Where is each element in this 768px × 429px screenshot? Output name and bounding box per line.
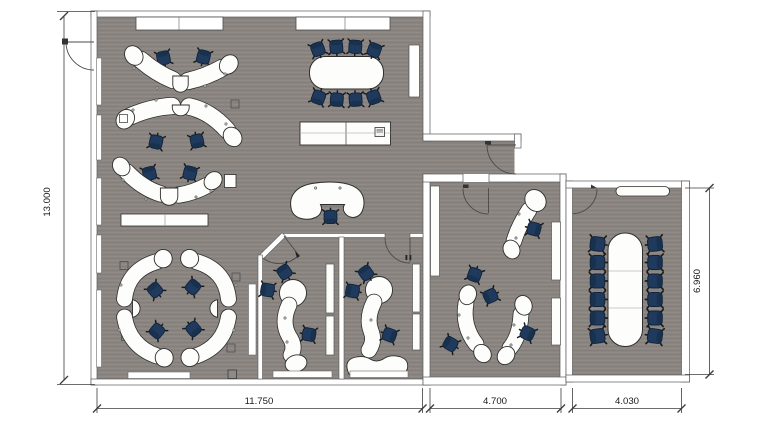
svg-text:13.000: 13.000	[42, 187, 53, 216]
svg-text:6.960: 6.960	[692, 269, 703, 293]
svg-text:4.700: 4.700	[483, 396, 507, 407]
svg-text:4.030: 4.030	[615, 396, 639, 407]
svg-text:11.750: 11.750	[245, 396, 274, 407]
